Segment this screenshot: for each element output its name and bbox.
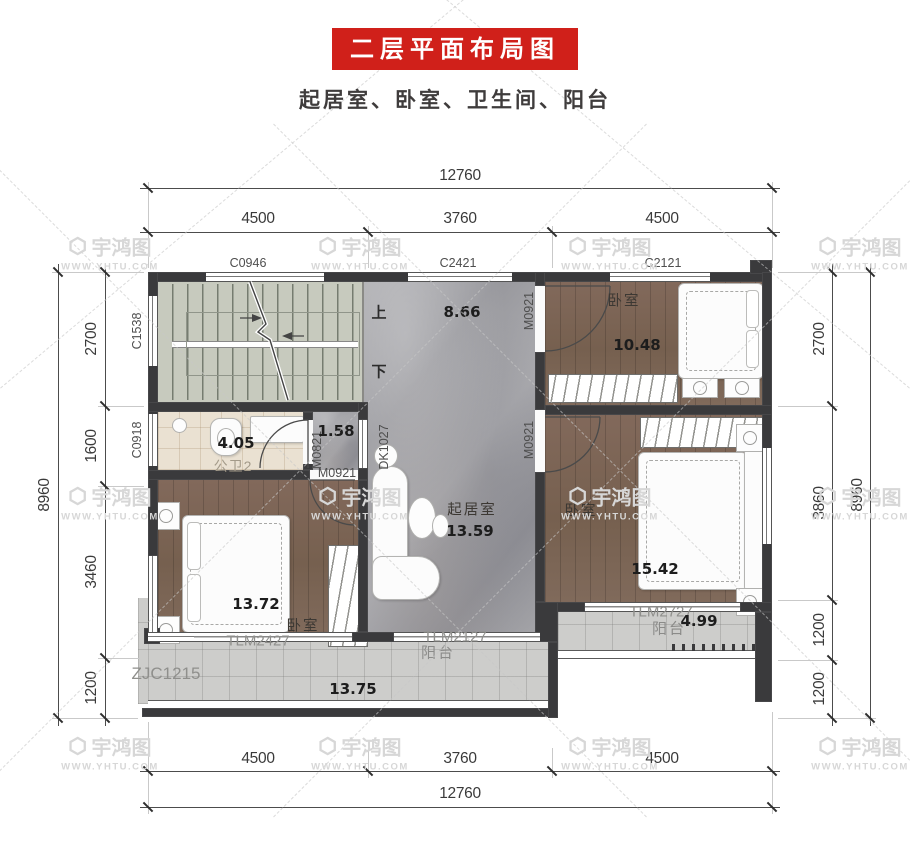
dimension-line [832,264,833,726]
dim-label: 1200 [811,613,829,646]
extension-line [772,182,773,268]
label-window-code: C2421 [440,256,477,270]
extension-line [778,406,838,407]
area-balcony-right: 4.99 [680,612,717,630]
room-name-bedroom-left: 卧室 [287,615,320,636]
hexagon-logo-icon [819,237,838,256]
wall [358,468,368,480]
opening-dk1027 [358,420,368,468]
room-name-living: 起居室 [447,499,497,520]
balcony-main-outer-wall [142,708,556,717]
area-corridor: 8.66 [443,303,480,321]
dim-label: 4500 [241,750,274,768]
dim-label: 12760 [439,785,481,803]
watermark-brand: 宇鸿图 [592,732,652,761]
hexagon-logo-icon [69,237,88,256]
hexagon-logo-icon [819,737,838,756]
wall [545,405,772,415]
window-c0946 [206,272,324,282]
window-c0918 [148,414,158,466]
watermark-brand: 宇鸿图 [842,732,902,761]
label-window-code: ZJC1215 [132,664,201,684]
wall [358,480,368,632]
dim-label: 3860 [811,486,829,519]
nightstand [724,378,760,398]
balcony-right-railing-posts [672,644,755,651]
area-bedroom-right: 15.42 [631,560,678,578]
watermark-url: WWW.YHTU.COM [61,512,159,523]
bed-headboard [744,450,764,590]
stairwell-outline [186,312,360,376]
dimension-line [140,188,780,189]
wall [740,602,772,612]
extension-line [772,712,773,814]
area-balcony-main: 13.75 [329,680,376,698]
extension-line [778,600,838,601]
watermark-brand: 宇鸿图 [342,732,402,761]
dim-label: 2700 [811,322,829,355]
label-window-code: C0918 [130,422,144,459]
stair-edge-line [362,282,364,402]
dim-label: 12760 [439,167,481,185]
watermark-url: WWW.YHTU.COM [811,762,909,773]
wall [755,612,772,702]
extension-line [52,718,138,719]
extension-line [778,660,838,661]
extension-line [52,272,144,273]
watermark-url: WWW.YHTU.COM [811,262,909,273]
dim-label: 3760 [443,210,476,228]
watermark-url: WWW.YHTU.COM [311,262,409,273]
pillow [187,522,201,570]
door-opening-bedroom-top [535,286,545,352]
floorplan-canvas: 二层平面布局图 起居室、卧室、卫生间、阳台 [0,0,910,862]
page-subtitle: 起居室、卧室、卫生间、阳台 [299,84,611,114]
stair-down-label: 下 [371,361,386,382]
wall [535,472,545,602]
hexagon-logo-icon [569,237,588,256]
nightstand [736,424,764,452]
hexagon-logo-icon [319,237,338,256]
area-nook: 1.58 [317,422,354,440]
dim-label: 4500 [645,210,678,228]
wall [548,642,558,718]
window-c2121 [610,272,710,282]
label-door-code: M0921 [522,421,536,459]
area-bedroom-left: 13.72 [232,595,279,613]
dim-label: 8960 [849,478,867,511]
watermark: 宇鸿图WWW.YHTU.COM [561,732,659,773]
area-living: 13.59 [446,522,493,540]
watermark-brand: 宇鸿图 [92,232,152,261]
wall [535,352,545,410]
dim-label: 1200 [811,672,829,705]
label-door-code: TLM2427 [226,633,289,650]
balcony-main-floor-left-wrap [138,598,148,704]
room-name-bedroom-right: 卧室 [565,500,598,521]
page-title: 二层平面布局图 [332,28,578,70]
label-door-code: M0921 [522,292,536,330]
label-window-code: C1538 [130,313,144,350]
hexagon-logo-icon [69,737,88,756]
pillow [746,290,759,328]
wall [148,402,368,412]
floor-drain [172,418,187,433]
room-name-balcony-main: 阳台 [421,642,455,663]
window-zjc1215-bottom [148,632,194,642]
watermark: 宇鸿图WWW.YHTU.COM [811,232,909,273]
window-right [762,448,772,544]
hexagon-logo-icon [569,737,588,756]
ottoman [408,497,436,539]
dim-label: 4500 [645,750,678,768]
watermark: 宇鸿图WWW.YHTU.COM [811,732,909,773]
dim-label: 8960 [36,478,54,511]
dim-label: 1600 [83,429,101,462]
dimension-line [58,264,59,726]
wall [535,272,545,286]
pillow [746,330,759,368]
nightstand [682,378,718,398]
hexagon-logo-icon [69,487,88,506]
door-opening-bedroom-right [535,410,545,472]
watermark-url: WWW.YHTU.COM [61,262,159,273]
wall [358,402,368,420]
sofa-chaise [372,556,440,600]
watermark: 宇鸿图WWW.YHTU.COM [311,232,409,273]
label-opening-code: DK1027 [377,424,391,469]
window-c2421 [408,272,512,282]
label-window-code: C2121 [645,256,682,270]
dim-label: 4500 [241,210,274,228]
dim-label: 1200 [83,671,101,704]
area-bedroom-top: 10.48 [613,336,660,354]
wall [352,632,394,642]
watermark-brand: 宇鸿图 [842,232,902,261]
watermark: 宇鸿图WWW.YHTU.COM [61,482,159,523]
extension-line [148,182,149,268]
dim-label: 3460 [83,555,101,588]
room-name-bath: 公卫2 [214,456,253,476]
extension-line [778,718,876,719]
sink-counter [250,416,304,443]
dimension-line [870,264,871,726]
extension-line [778,272,876,273]
room-name-bedroom-top: 卧室 [608,290,641,311]
pillow [187,574,201,622]
dim-label: 2700 [83,322,101,355]
window-c1538 [148,296,158,366]
watermark-brand: 宇鸿图 [592,232,652,261]
wardrobe-top-bedroom [548,374,678,403]
dimension-line [140,232,780,233]
watermark: 宇鸿图WWW.YHTU.COM [311,732,409,773]
label-window-code: C0946 [230,256,267,270]
window-zjc1215-left [148,556,158,632]
watermark-brand: 宇鸿图 [92,732,152,761]
area-bath: 4.05 [217,434,254,452]
balcony-right-railing [558,650,755,659]
hexagon-logo-icon [319,737,338,756]
dim-label: 3760 [443,750,476,768]
extension-line [148,722,149,814]
dimension-line [140,807,780,808]
stair-up-label: 上 [371,302,386,323]
watermark: 宇鸿图WWW.YHTU.COM [61,232,159,273]
dimension-line [140,771,780,772]
